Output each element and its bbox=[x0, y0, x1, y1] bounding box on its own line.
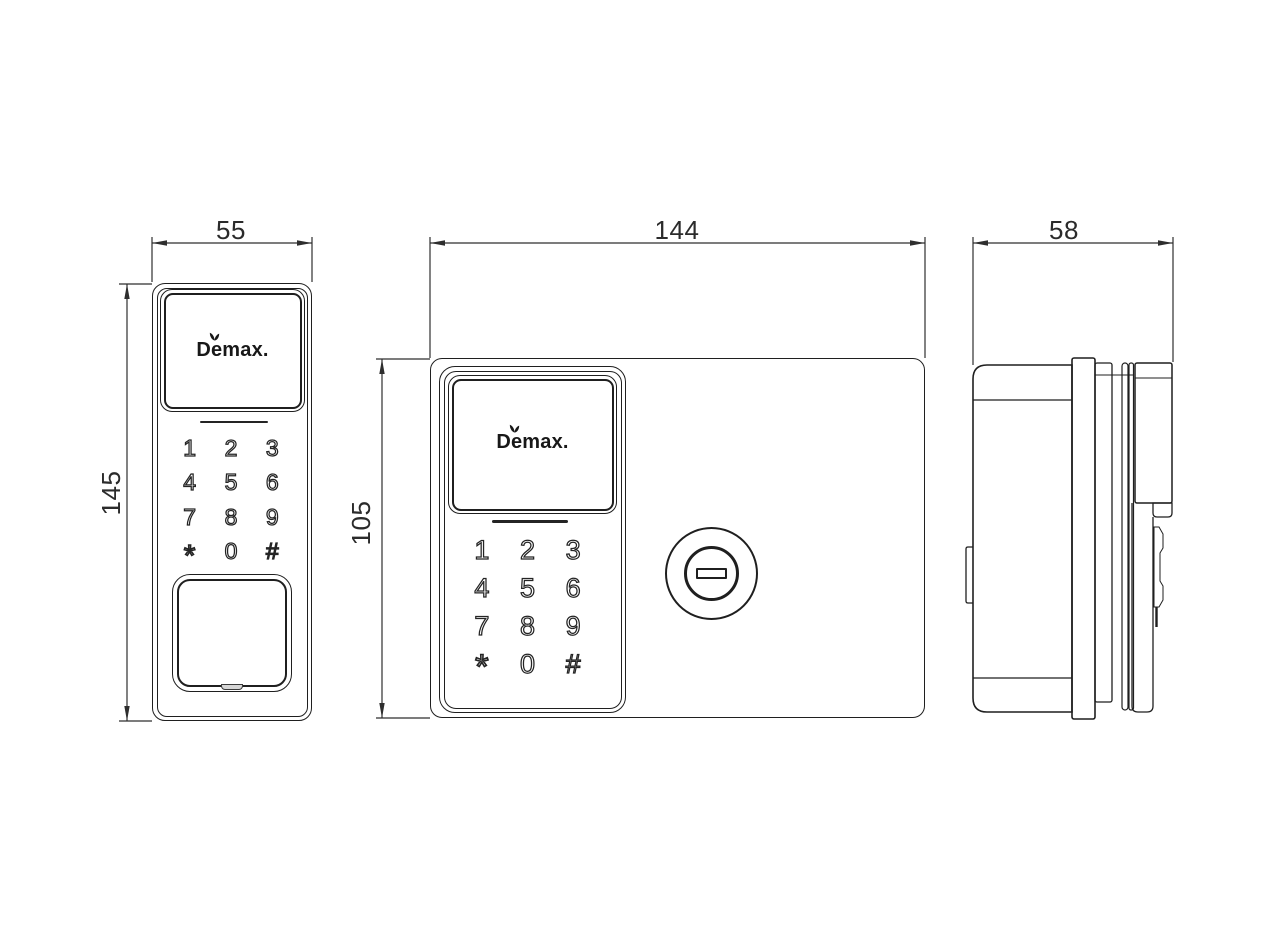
side-lower-strip bbox=[1132, 503, 1153, 712]
brand-wordmark: Demax. bbox=[196, 339, 268, 361]
side-thin-strip-2 bbox=[1129, 363, 1134, 710]
side-main-housing bbox=[973, 365, 1072, 712]
key-5: 5 bbox=[505, 570, 551, 608]
brand-logo-front: Demax. bbox=[160, 339, 305, 362]
side-profile-view bbox=[950, 340, 1200, 732]
key-star: * bbox=[453, 644, 511, 692]
dimension-drawing-canvas: { "brand": "Demax.", "dimensions": { "ex… bbox=[0, 0, 1264, 946]
key-3: 3 bbox=[550, 532, 596, 570]
side-latch-tab bbox=[1153, 503, 1172, 517]
side-button bbox=[966, 547, 973, 603]
dimension-label-front-width: 55 bbox=[204, 216, 258, 244]
dimension-label-main-width: 144 bbox=[645, 216, 709, 244]
keyhole-slot bbox=[696, 568, 727, 579]
dimension-label-main-height: 105 bbox=[347, 495, 377, 551]
key-2: 2 bbox=[210, 431, 251, 466]
key-2: 2 bbox=[505, 532, 551, 570]
key-5: 5 bbox=[210, 466, 251, 501]
key-8: 8 bbox=[210, 500, 251, 535]
dimension-label-front-height: 145 bbox=[97, 465, 127, 521]
key-7: 7 bbox=[169, 500, 210, 535]
side-spacer-plate bbox=[1095, 363, 1112, 702]
side-latch-housing bbox=[1135, 363, 1172, 503]
key-hash: # bbox=[550, 645, 596, 683]
key-7: 7 bbox=[459, 608, 505, 646]
key-4: 4 bbox=[459, 570, 505, 608]
side-thin-strip-1 bbox=[1122, 363, 1128, 710]
key-0: 0 bbox=[210, 535, 251, 570]
key-3: 3 bbox=[252, 431, 293, 466]
main-keypad: 1 2 3 4 5 6 7 8 9 * 0 # bbox=[459, 532, 596, 683]
fingerprint-flap bbox=[177, 579, 287, 687]
key-9: 9 bbox=[550, 608, 596, 646]
brand-logo-main: Demax. bbox=[448, 431, 617, 454]
speaker-slot-front bbox=[200, 421, 268, 424]
key-star: * bbox=[163, 533, 216, 577]
dimension-label-side-depth: 58 bbox=[1037, 216, 1091, 244]
key-0: 0 bbox=[505, 645, 551, 683]
dim-line-105 bbox=[370, 352, 436, 728]
key-8: 8 bbox=[505, 608, 551, 646]
key-1: 1 bbox=[169, 431, 210, 466]
leaf-icon bbox=[509, 424, 520, 433]
key-1: 1 bbox=[459, 532, 505, 570]
side-back-plate bbox=[1072, 358, 1095, 719]
key-hash: # bbox=[252, 535, 293, 570]
flap-notch bbox=[221, 684, 243, 690]
dim-line-144 bbox=[418, 236, 940, 362]
front-keypad: 1 2 3 4 5 6 7 8 9 * 0 # bbox=[169, 431, 293, 569]
key-9: 9 bbox=[252, 500, 293, 535]
side-spring-latch bbox=[1154, 527, 1163, 607]
leaf-icon bbox=[209, 332, 220, 341]
key-4: 4 bbox=[169, 466, 210, 501]
speaker-slot-main bbox=[492, 520, 568, 523]
key-6: 6 bbox=[550, 570, 596, 608]
brand-wordmark: Demax. bbox=[496, 431, 568, 453]
key-6: 6 bbox=[252, 466, 293, 501]
